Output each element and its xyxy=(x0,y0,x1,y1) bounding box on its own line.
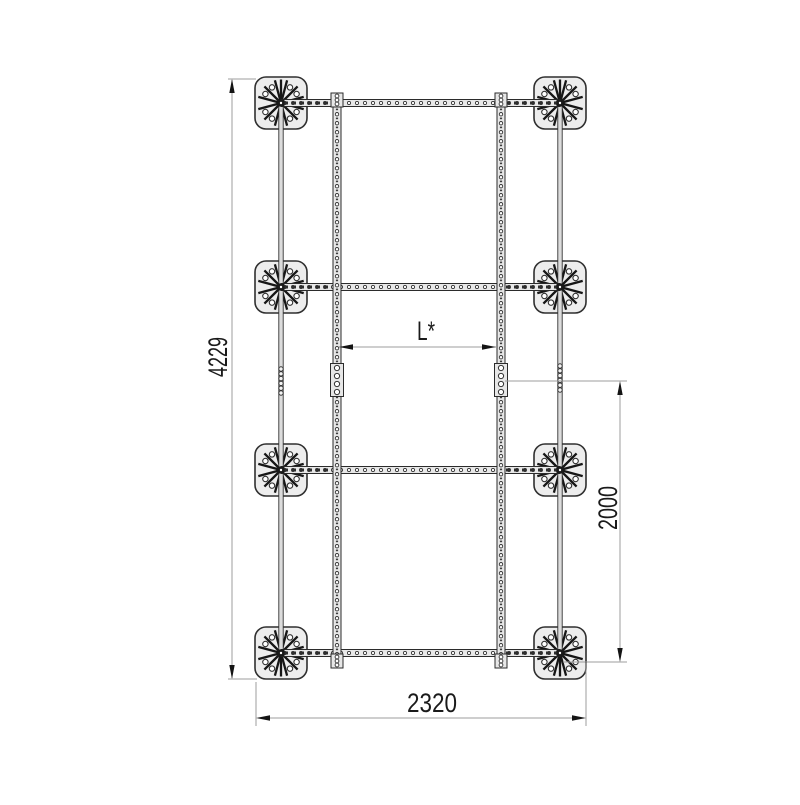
dimension-segment-length: 2000 xyxy=(505,381,627,662)
overall-length-label: 4229 xyxy=(203,337,233,377)
crossbars xyxy=(281,100,560,657)
crossbar-row-2 xyxy=(281,284,560,291)
arrowhead-left-icon xyxy=(256,715,270,720)
dimension-rail-spacing: L* xyxy=(339,316,496,350)
pad-hub xyxy=(557,284,564,291)
crossbar-row-3 xyxy=(281,467,560,474)
drawing-canvas: 4229 L* 2000 2320 xyxy=(0,0,800,800)
pad-hub xyxy=(278,467,285,474)
pad-hub xyxy=(557,467,564,474)
perforated-rail-left xyxy=(331,93,344,668)
rail-end-plate xyxy=(331,654,343,668)
leg-tube-left xyxy=(279,103,283,653)
pad-hub xyxy=(557,650,564,657)
rail-spacing-label: L* xyxy=(417,316,435,346)
pad-hub xyxy=(278,100,285,107)
rail-end-plate xyxy=(495,654,507,668)
arrowhead-down-icon xyxy=(617,648,622,662)
arrowhead-right-icon xyxy=(482,344,496,349)
leg-tube-right xyxy=(558,103,562,653)
foot-pads xyxy=(255,77,586,679)
rail-end-plate xyxy=(331,93,343,107)
arrowhead-right-icon xyxy=(572,715,586,720)
pad-hub xyxy=(278,650,285,657)
overall-width-label: 2320 xyxy=(407,688,457,718)
rail-splice-plate xyxy=(495,364,508,397)
arrowhead-down-icon xyxy=(229,665,234,679)
frame-plan-drawing: 4229 L* 2000 2320 xyxy=(0,0,800,800)
arrowhead-up-icon xyxy=(229,79,234,93)
pad-hub xyxy=(278,284,285,291)
crossbar-row-1 xyxy=(281,100,560,107)
leg-tubes xyxy=(279,103,562,653)
rail-end-plate xyxy=(495,93,507,107)
arrowhead-up-icon xyxy=(617,381,622,395)
dimension-overall-length: 4229 xyxy=(203,79,257,679)
pad-hub xyxy=(557,100,564,107)
pad-hubs xyxy=(278,100,564,657)
segment-length-label: 2000 xyxy=(593,486,623,530)
crossbar-row-4 xyxy=(281,650,560,657)
rail-splice-plate xyxy=(331,364,344,397)
